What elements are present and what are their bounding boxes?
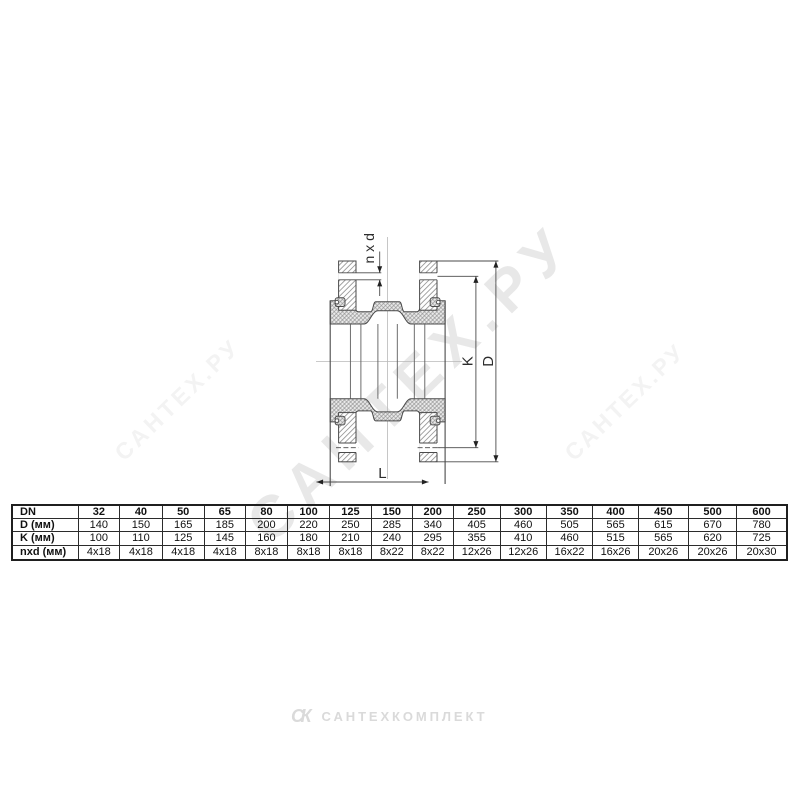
svg-text:L: L	[378, 465, 386, 482]
svg-text:САНТЕХ.РУ: САНТЕХ.РУ	[109, 333, 245, 466]
svg-text:D: D	[480, 356, 497, 367]
svg-text:n x d: n x d	[361, 233, 377, 263]
svg-text:САНТЕХ.РУ: САНТЕХ.РУ	[559, 338, 690, 466]
svg-text:K: K	[460, 356, 477, 366]
